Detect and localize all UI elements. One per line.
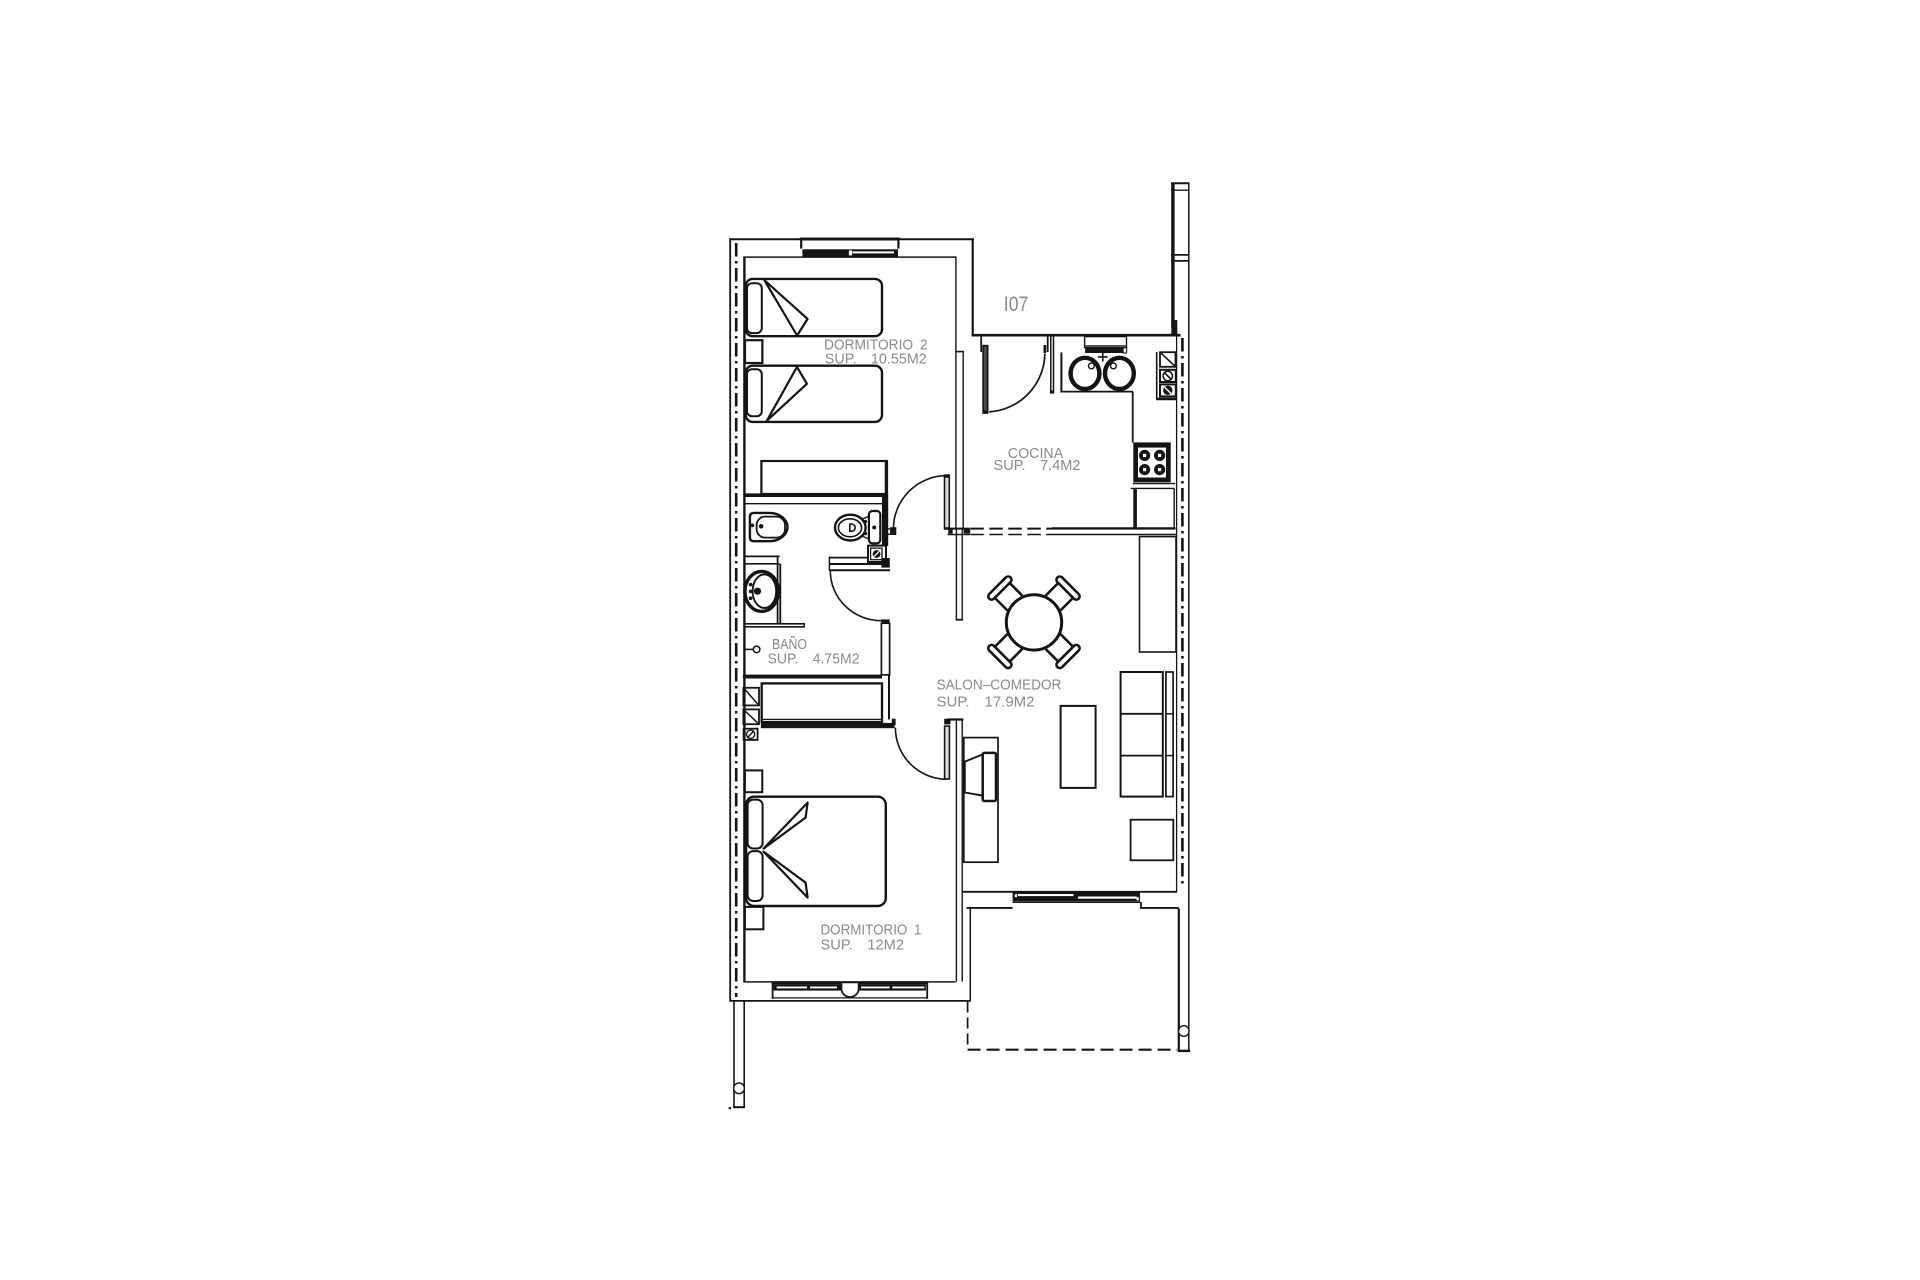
svg-text:SUP. 17.9M2: SUP. 17.9M2: [937, 695, 1035, 711]
svg-text:SUP. 7.4M2: SUP. 7.4M2: [994, 458, 1081, 474]
svg-text:DORMITORIO 1: DORMITORIO 1: [821, 923, 922, 939]
svg-text:SALON–COMEDOR: SALON–COMEDOR: [937, 678, 1062, 694]
svg-text:SUP. 10.55M2: SUP. 10.55M2: [825, 351, 927, 367]
svg-text:SUP. 4.75M2: SUP. 4.75M2: [768, 652, 860, 668]
svg-text:SUP. 12M2: SUP. 12M2: [821, 938, 905, 954]
svg-text:BAÑO: BAÑO: [772, 636, 807, 653]
svg-text:I07: I07: [1004, 293, 1029, 316]
